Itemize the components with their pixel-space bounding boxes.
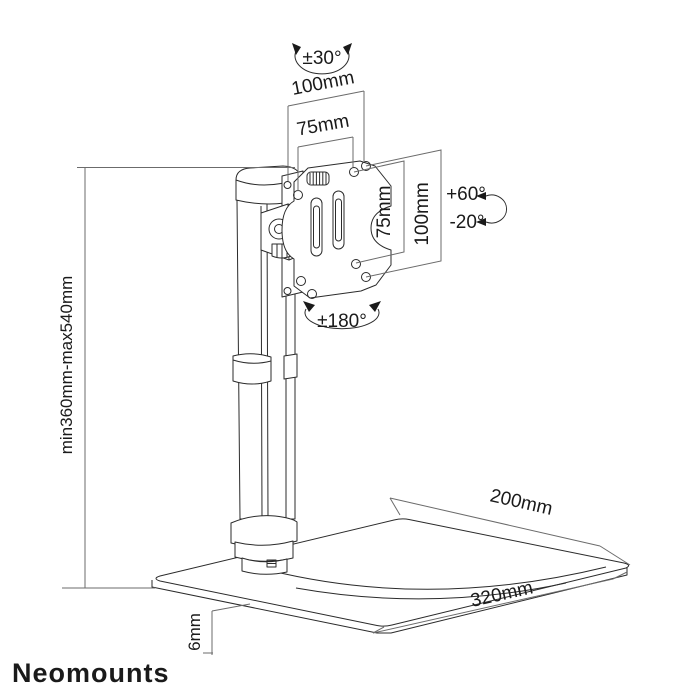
tilt-arc	[486, 195, 507, 223]
thickness-extension	[212, 604, 250, 611]
label-height-range: min360mm-max540mm	[57, 276, 76, 455]
depth-extension-left	[390, 498, 400, 515]
label-rotation: ±180°	[317, 311, 367, 332]
label-vesa-height-outer: 100mm	[412, 182, 433, 245]
label-base-depth: 200mm	[488, 485, 554, 520]
rotation-arrow-left-icon	[303, 301, 315, 312]
collar-tier-1	[231, 516, 297, 547]
swivel-top-arrow-left-icon	[292, 43, 301, 55]
base-top-face	[156, 519, 629, 626]
rail-sleeve	[284, 354, 297, 379]
brand-logo: Neomounts	[12, 658, 170, 688]
label-vesa-height-inner: 75mm	[374, 186, 395, 239]
pole-band	[233, 354, 271, 384]
monitor-stand-dimension-diagram: ±30° 100mm 75mm 75mm 100mm +60° -20° ±18…	[0, 0, 700, 700]
label-base-thickness: 6mm	[185, 613, 204, 651]
label-vesa-width-inner: 75mm	[295, 111, 351, 141]
diagram-canvas: ±30° 100mm 75mm 75mm 100mm +60° -20° ±18…	[0, 0, 700, 700]
label-vesa-width-outer: 100mm	[290, 67, 356, 100]
label-tilt-down: -20°	[449, 212, 484, 233]
label-swivel-top: ±30°	[302, 48, 341, 69]
label-tilt-up: +60°	[446, 184, 486, 205]
swivel-top-arrow-right-icon	[343, 43, 352, 55]
rotation-arrow-right-icon	[369, 301, 381, 312]
